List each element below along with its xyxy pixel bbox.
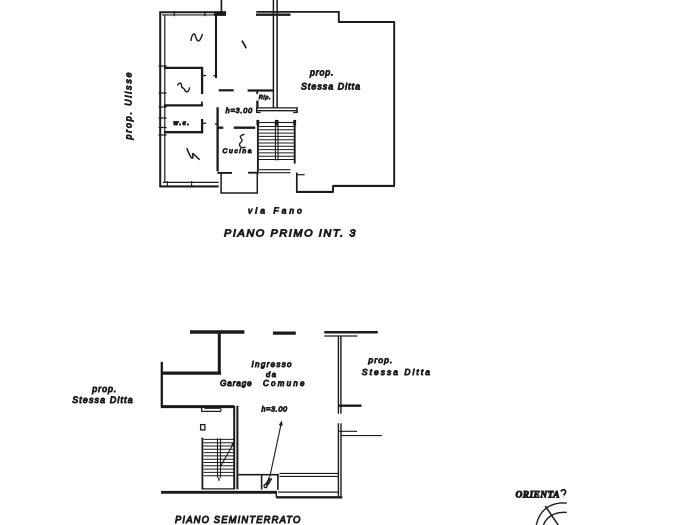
- svg-text:Stessa Ditta: Stessa Ditta: [362, 367, 430, 377]
- svg-text:da: da: [266, 370, 276, 379]
- svg-text:PIANO PRIMO INT. 3: PIANO PRIMO INT. 3: [224, 228, 357, 239]
- svg-text:prop.: prop.: [91, 384, 116, 394]
- svg-text:Ingresso: Ingresso: [252, 360, 293, 369]
- svg-text:Cucina: Cucina: [223, 148, 252, 155]
- svg-text:Stessa Ditta: Stessa Ditta: [72, 395, 133, 405]
- svg-text:prop.: prop.: [367, 355, 392, 365]
- svg-text:Rip.: Rip.: [259, 95, 271, 101]
- svg-text:Garage: Garage: [220, 379, 252, 388]
- svg-text:ORIENTA: ORIENTA: [516, 491, 560, 501]
- svg-text:via Fano: via Fano: [248, 205, 303, 215]
- svg-text:Stessa Ditta: Stessa Ditta: [301, 81, 360, 91]
- svg-text:w.c.: w.c.: [174, 121, 190, 127]
- svg-text:h=3.00: h=3.00: [226, 106, 253, 115]
- svg-text:Comune: Comune: [263, 379, 305, 388]
- svg-text:prop. Ulisse: prop. Ulisse: [124, 72, 134, 140]
- svg-text:h=3.00: h=3.00: [262, 405, 288, 414]
- svg-text:prop.: prop.: [309, 68, 334, 78]
- svg-text:Cant.: Cant.: [263, 476, 274, 489]
- svg-text:PIANO SEMINTERRATO: PIANO SEMINTERRATO: [175, 515, 302, 525]
